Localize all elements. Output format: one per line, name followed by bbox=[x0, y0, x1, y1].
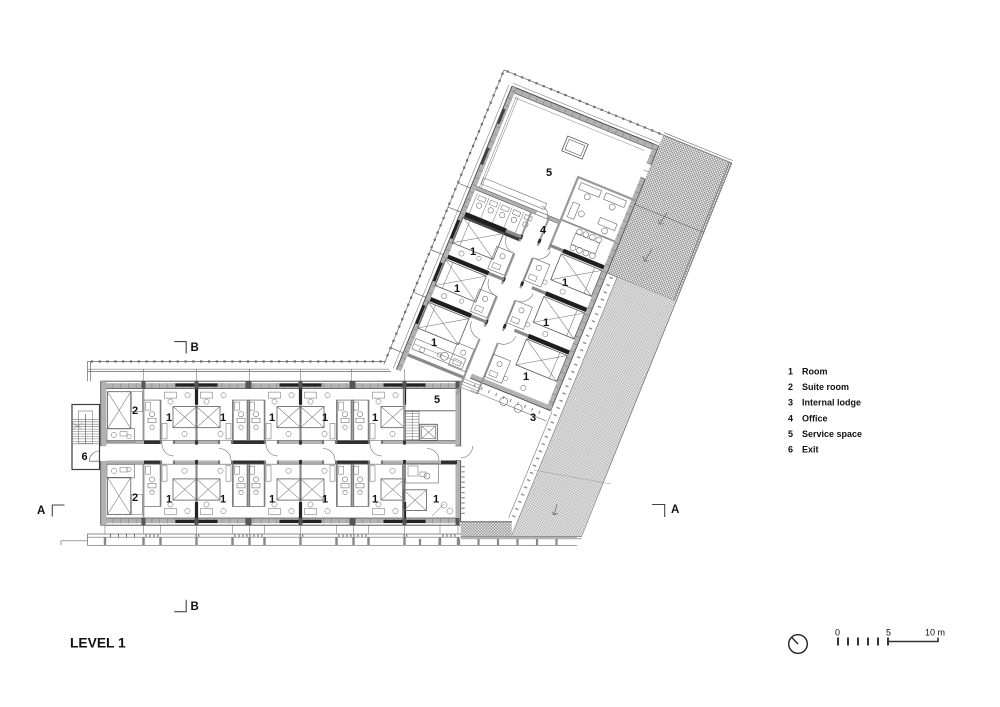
svg-text:4: 4 bbox=[540, 225, 547, 237]
svg-text:3: 3 bbox=[788, 398, 793, 408]
svg-text:Internal lodge: Internal lodge bbox=[802, 398, 861, 408]
svg-text:1: 1 bbox=[372, 494, 378, 506]
svg-text:1: 1 bbox=[166, 412, 172, 424]
svg-text:4: 4 bbox=[788, 413, 793, 423]
svg-text:1: 1 bbox=[454, 283, 460, 295]
svg-text:6: 6 bbox=[788, 445, 793, 455]
svg-text:Exit: Exit bbox=[802, 445, 819, 455]
svg-text:1: 1 bbox=[372, 412, 378, 424]
svg-text:1: 1 bbox=[431, 337, 437, 349]
svg-text:1: 1 bbox=[220, 494, 226, 506]
svg-text:1: 1 bbox=[269, 494, 275, 506]
svg-text:1: 1 bbox=[322, 494, 328, 506]
svg-text:1: 1 bbox=[562, 277, 568, 289]
svg-text:1: 1 bbox=[220, 412, 226, 424]
svg-text:LEVEL 1: LEVEL 1 bbox=[70, 636, 126, 651]
svg-text:1: 1 bbox=[166, 494, 172, 506]
svg-text:Office: Office bbox=[802, 413, 828, 423]
svg-text:0: 0 bbox=[835, 628, 840, 638]
svg-text:Service space: Service space bbox=[802, 429, 862, 439]
svg-text:5: 5 bbox=[788, 429, 793, 439]
svg-text:Room: Room bbox=[802, 367, 828, 377]
svg-text:3: 3 bbox=[530, 412, 536, 424]
svg-text:10 m: 10 m bbox=[925, 628, 945, 638]
svg-text:2: 2 bbox=[132, 492, 138, 504]
svg-text:1: 1 bbox=[523, 371, 529, 383]
svg-text:A: A bbox=[671, 504, 679, 516]
svg-text:1: 1 bbox=[788, 367, 793, 377]
svg-text:5: 5 bbox=[434, 394, 440, 406]
svg-text:1: 1 bbox=[470, 246, 476, 258]
svg-text:1: 1 bbox=[433, 494, 439, 506]
svg-text:1: 1 bbox=[543, 317, 549, 329]
svg-text:1: 1 bbox=[322, 412, 328, 424]
svg-text:Suite room: Suite room bbox=[802, 382, 849, 392]
svg-text:2: 2 bbox=[788, 382, 793, 392]
svg-text:5: 5 bbox=[546, 167, 552, 179]
svg-text:5: 5 bbox=[886, 628, 891, 638]
svg-text:A: A bbox=[37, 505, 45, 517]
svg-text:B: B bbox=[191, 601, 199, 613]
svg-text:1: 1 bbox=[269, 412, 275, 424]
svg-text:6: 6 bbox=[82, 451, 88, 463]
svg-text:2: 2 bbox=[132, 405, 138, 417]
svg-text:B: B bbox=[191, 342, 199, 354]
